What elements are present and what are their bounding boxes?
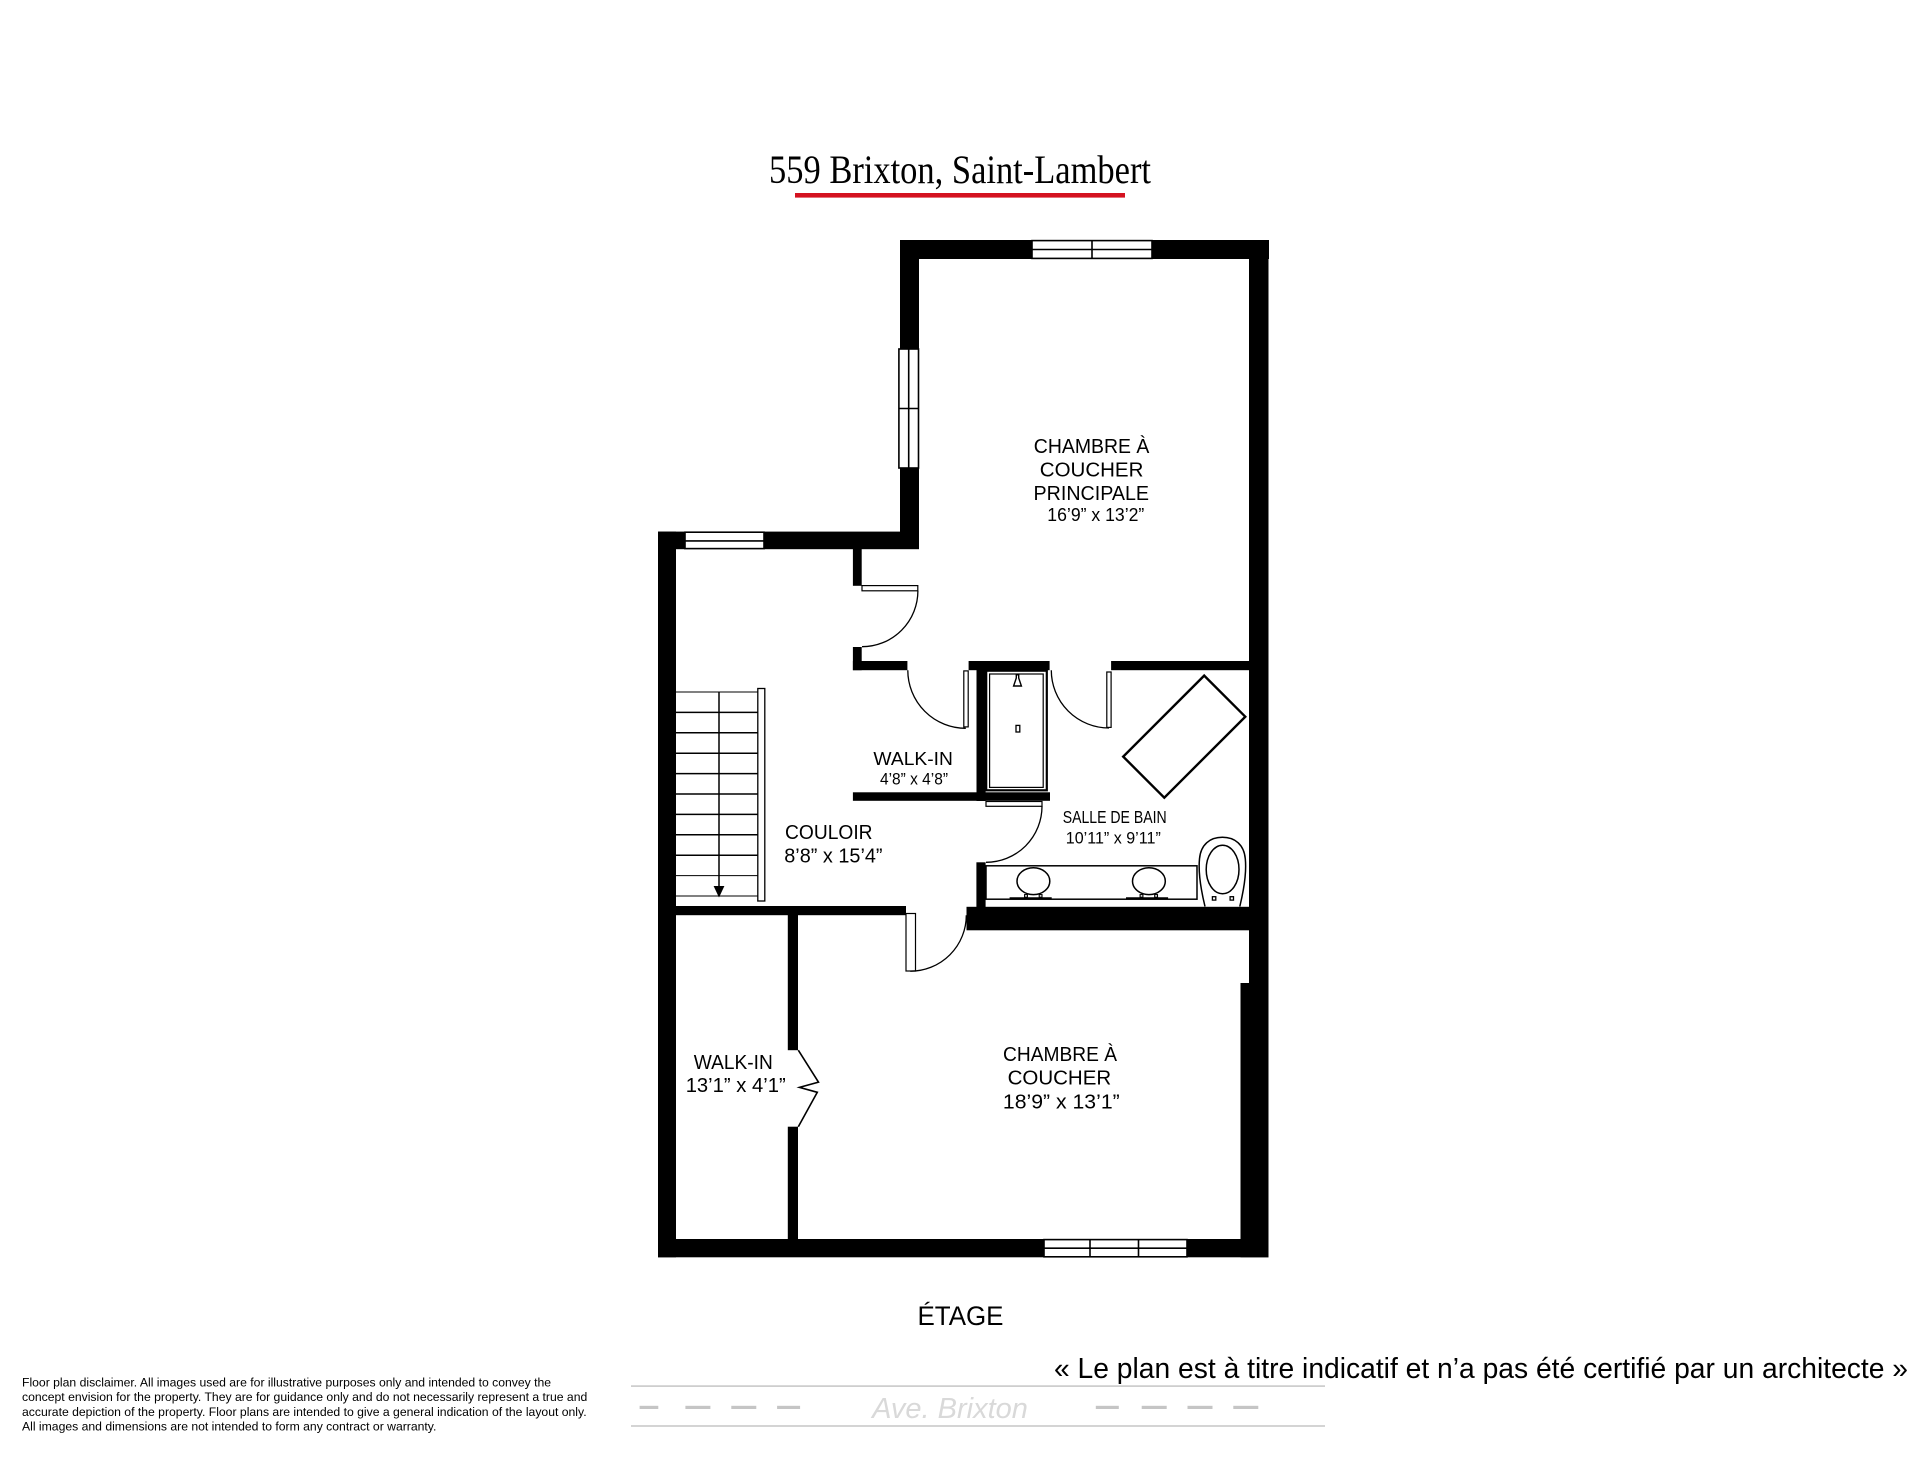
svg-text:13’1” x 4’1”: 13’1” x 4’1” [686,1074,786,1097]
svg-text:10’11” x 9’11”: 10’11” x 9’11” [1066,828,1161,847]
svg-text:concept envision for the prope: concept envision for the property. They … [22,1390,587,1404]
svg-text:Ave. Brixton: Ave. Brixton [870,1393,1028,1425]
svg-text:COUCHER: COUCHER [1040,459,1144,482]
svg-text:CHAMBRE À: CHAMBRE À [1003,1043,1117,1066]
svg-text:4’8” x 4’8”: 4’8” x 4’8” [880,769,948,788]
svg-text:WALK-IN: WALK-IN [694,1051,773,1074]
svg-text:accurate depiction of the prop: accurate depiction of the property. Floo… [22,1405,587,1419]
svg-text:COULOIR: COULOIR [785,821,873,844]
svg-text:CHAMBRE À: CHAMBRE À [1034,435,1150,458]
svg-text:16’9” x 13’2”: 16’9” x 13’2” [1047,504,1144,525]
svg-text:559 Brixton, Saint-Lambert: 559 Brixton, Saint-Lambert [769,147,1151,192]
svg-text:Floor plan disclaimer. All ima: Floor plan disclaimer. All images used a… [22,1376,551,1390]
svg-text:COUCHER: COUCHER [1008,1066,1112,1089]
svg-text:18’9” x 13’1”: 18’9” x 13’1” [1003,1091,1120,1114]
svg-text:8’8” x 15’4”: 8’8” x 15’4” [784,846,882,868]
svg-text:All images and dimensions are: All images and dimensions are not intend… [22,1420,436,1434]
svg-text:SALLE DE BAIN: SALLE DE BAIN [1063,807,1167,827]
svg-text:PRINCIPALE: PRINCIPALE [1034,482,1150,505]
svg-text:WALK-IN: WALK-IN [873,749,953,769]
svg-text:ÉTAGE: ÉTAGE [918,1301,1004,1331]
svg-text:« Le plan est à titre indicati: « Le plan est à titre indicatif et n’a p… [1054,1353,1908,1385]
